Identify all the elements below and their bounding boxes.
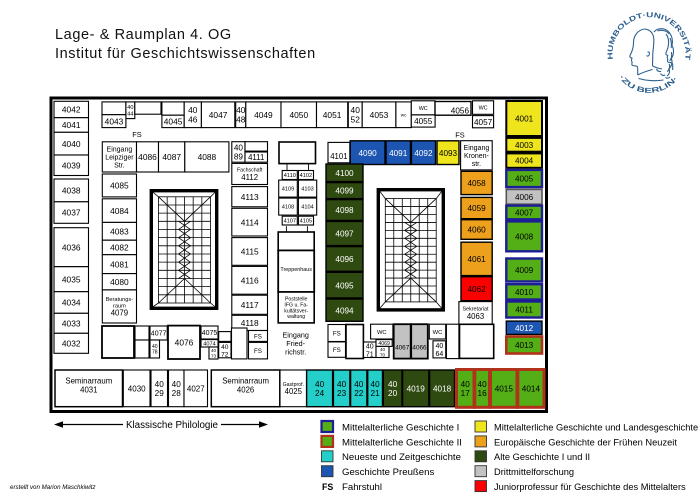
svg-text:4091: 4091 [389,149,408,158]
svg-text:4116: 4116 [241,276,259,286]
svg-text:4011: 4011 [515,306,533,315]
svg-text:4066: 4066 [412,344,427,351]
svg-text:4014: 4014 [522,385,541,394]
svg-text:48: 48 [236,115,246,125]
svg-text:4043: 4043 [105,116,124,126]
svg-text:4117: 4117 [241,300,259,310]
svg-text:EingangFried-richstr.: EingangFried-richstr. [283,331,309,357]
svg-text:WC: WC [433,330,443,336]
svg-text:73: 73 [211,353,217,358]
svg-text:4093: 4093 [439,149,458,158]
svg-text:4009: 4009 [515,266,534,275]
svg-text:24: 24 [315,389,325,398]
svg-text:28: 28 [172,389,182,398]
svg-text:Neueste und Zeitgeschichte: Neueste und Zeitgeschichte [342,452,461,463]
svg-text:40: 40 [234,144,244,153]
svg-text:4110: 4110 [284,173,296,179]
svg-text:4030: 4030 [128,384,146,393]
svg-text:4094: 4094 [335,306,354,315]
svg-text:Kronen-: Kronen- [464,153,490,160]
svg-text:4006: 4006 [515,193,534,202]
svg-text:erstellt von Marion Maschkiwit: erstellt von Marion Maschkiwitz [10,484,97,491]
svg-text:70: 70 [380,352,386,357]
svg-text:4090: 4090 [358,149,377,158]
svg-text:4055: 4055 [414,117,433,126]
svg-text:4118: 4118 [241,318,259,328]
svg-text:4005: 4005 [515,175,534,184]
svg-text:4001: 4001 [515,115,534,124]
svg-text:4098: 4098 [335,206,354,215]
svg-text:4036: 4036 [62,242,81,252]
svg-text:FS: FS [132,130,142,139]
svg-text:4101: 4101 [330,152,347,161]
svg-text:22: 22 [354,389,364,398]
svg-text:Mittelalterliche Geschichte I: Mittelalterliche Geschichte I [342,422,459,433]
svg-text:4007: 4007 [515,209,534,218]
svg-text:4019: 4019 [407,385,426,394]
svg-text:40: 40 [172,380,182,389]
svg-text:4034: 4034 [62,298,81,308]
svg-text:Europäische Geschichte der Frü: Europäische Geschichte der Frühen Neuzei… [494,437,677,447]
svg-text:4060: 4060 [467,226,486,235]
svg-text:4092: 4092 [414,149,433,158]
svg-text:4086: 4086 [138,152,157,162]
svg-text:4057: 4057 [474,118,493,127]
svg-text:4049: 4049 [254,110,273,120]
svg-text:4075: 4075 [202,330,218,337]
svg-text:71: 71 [366,351,374,358]
svg-text:4035: 4035 [62,274,81,284]
svg-text:Klassische Philologie: Klassische Philologie [126,420,219,431]
svg-text:FS: FS [455,131,465,140]
svg-text:4085: 4085 [110,181,129,191]
svg-text:wc: wc [401,113,407,118]
svg-text:40: 40 [371,380,381,389]
svg-text:4038: 4038 [62,186,81,196]
svg-text:72: 72 [221,351,229,358]
svg-text:Str.: Str. [114,162,125,169]
svg-text:Mittelalterliche Geschichte II: Mittelalterliche Geschichte II [342,437,462,448]
svg-text:4037: 4037 [62,208,81,218]
svg-text:20: 20 [388,389,398,398]
svg-text:Alte Geschichte I und II: Alte Geschichte I und II [494,452,590,462]
svg-text:4003: 4003 [515,141,534,150]
svg-text:4040: 4040 [62,139,81,149]
svg-text:4079: 4079 [111,309,128,318]
svg-text:Lage- & Raumplan 4. OG: Lage- & Raumplan 4. OG [55,27,232,43]
svg-text:4083: 4083 [110,227,129,237]
svg-text:4096: 4096 [335,255,354,264]
svg-text:Treppenhaus: Treppenhaus [280,267,312,273]
svg-text:Juniorprofessur für Geschichte: Juniorprofessur für Geschichte des Mitte… [494,482,686,492]
svg-text:4031: 4031 [80,385,97,394]
svg-text:4088: 4088 [198,152,217,162]
svg-text:4115: 4115 [241,247,259,257]
svg-text:46: 46 [188,115,198,125]
svg-text:40: 40 [354,380,364,389]
svg-text:4114: 4114 [241,217,259,227]
svg-text:FS: FS [254,333,262,340]
svg-text:4010: 4010 [515,288,534,297]
svg-text:4050: 4050 [289,110,308,120]
svg-text:4041: 4041 [62,120,81,130]
svg-text:4105: 4105 [300,219,312,225]
svg-text:4013: 4013 [515,341,534,350]
svg-text:44: 44 [127,112,133,118]
svg-text:40: 40 [221,344,229,351]
svg-text:4112: 4112 [241,173,258,182]
svg-text:4100: 4100 [335,169,354,178]
svg-text:4097: 4097 [335,230,354,239]
svg-text:Leipziger: Leipziger [105,155,134,162]
svg-text:4080: 4080 [110,277,129,287]
svg-text:4095: 4095 [335,281,354,290]
svg-text:str.: str. [472,161,481,168]
svg-text:WC: WC [479,106,488,112]
svg-text:4087: 4087 [162,152,181,162]
svg-text:4045: 4045 [164,117,183,127]
svg-text:Geschichte Preußens: Geschichte Preußens [342,467,434,478]
svg-text:4008: 4008 [515,233,534,242]
svg-text:40: 40 [366,344,374,351]
svg-text:78: 78 [152,350,158,356]
svg-text:4062: 4062 [467,285,486,294]
svg-text:4108: 4108 [282,205,294,211]
svg-text:FS: FS [322,482,333,492]
svg-text:16: 16 [478,389,488,398]
svg-text:4103: 4103 [301,187,313,193]
svg-text:29: 29 [155,389,165,398]
svg-text:4076: 4076 [175,338,194,348]
svg-text:4111: 4111 [248,153,264,162]
svg-text:40: 40 [478,380,488,389]
svg-text:waltung: waltung [287,314,305,320]
svg-text:Mittelalterliche Geschichte un: Mittelalterliche Geschichte und Landesge… [494,422,698,432]
svg-text:4059: 4059 [467,204,486,213]
svg-text:Drittmittelforschung: Drittmittelforschung [494,467,574,477]
svg-text:23: 23 [337,389,347,398]
svg-text:4104: 4104 [301,205,313,211]
svg-text:4027: 4027 [187,384,205,393]
svg-text:4018: 4018 [433,385,452,394]
svg-text:40: 40 [461,380,471,389]
svg-text:64: 64 [436,351,444,358]
svg-text:Eingang: Eingang [464,145,490,152]
svg-text:4026: 4026 [237,385,254,394]
svg-text:4081: 4081 [110,259,129,269]
svg-text:4077: 4077 [151,331,167,338]
svg-text:FS: FS [333,347,341,354]
svg-text:4025: 4025 [285,387,303,396]
svg-text:4063: 4063 [467,312,484,321]
svg-text:4061: 4061 [467,255,486,264]
svg-text:4047: 4047 [209,110,228,120]
svg-text:Seminarraum: Seminarraum [222,377,269,386]
svg-text:FS: FS [254,348,262,355]
svg-text:4102: 4102 [300,173,312,179]
svg-text:40: 40 [127,105,133,111]
svg-text:40: 40 [155,380,165,389]
svg-text:WC: WC [377,330,387,336]
svg-text:4033: 4033 [62,319,81,329]
svg-text:4012: 4012 [515,324,534,333]
svg-text:4032: 4032 [62,339,81,349]
svg-text:4067: 4067 [395,344,410,351]
svg-text:Institut für Geschichtswissens: Institut für Geschichtswissenschaften [55,46,316,62]
svg-text:·ZU BERLIN·: ·ZU BERLIN· [617,73,679,95]
svg-text:Fahrstuhl: Fahrstuhl [342,482,382,493]
svg-text:40: 40 [315,380,325,389]
svg-text:4084: 4084 [110,206,129,216]
svg-text:4099: 4099 [335,187,354,196]
svg-text:4058: 4058 [467,179,486,188]
svg-text:4107: 4107 [284,219,296,225]
svg-text:40: 40 [388,380,398,389]
svg-text:4051: 4051 [323,110,342,120]
svg-text:4053: 4053 [370,110,389,120]
svg-text:4042: 4042 [62,105,81,115]
svg-text:FS: FS [333,330,341,337]
svg-text:Seminarraum: Seminarraum [65,377,112,386]
svg-text:Eingang: Eingang [107,147,133,154]
svg-text:40: 40 [337,380,347,389]
svg-text:4056: 4056 [451,106,470,115]
svg-text:52: 52 [351,115,361,125]
svg-text:WC: WC [419,106,428,112]
svg-text:89: 89 [234,153,244,162]
svg-text:4039: 4039 [62,160,81,170]
svg-text:21: 21 [371,389,381,398]
svg-text:4015: 4015 [495,385,514,394]
svg-text:4109: 4109 [282,187,294,193]
svg-text:17: 17 [461,389,471,398]
svg-text:4082: 4082 [110,243,129,253]
svg-text:40: 40 [436,343,444,350]
svg-text:4004: 4004 [515,157,534,166]
svg-text:4113: 4113 [241,192,259,202]
svg-text:Beratungs-: Beratungs- [106,297,133,303]
